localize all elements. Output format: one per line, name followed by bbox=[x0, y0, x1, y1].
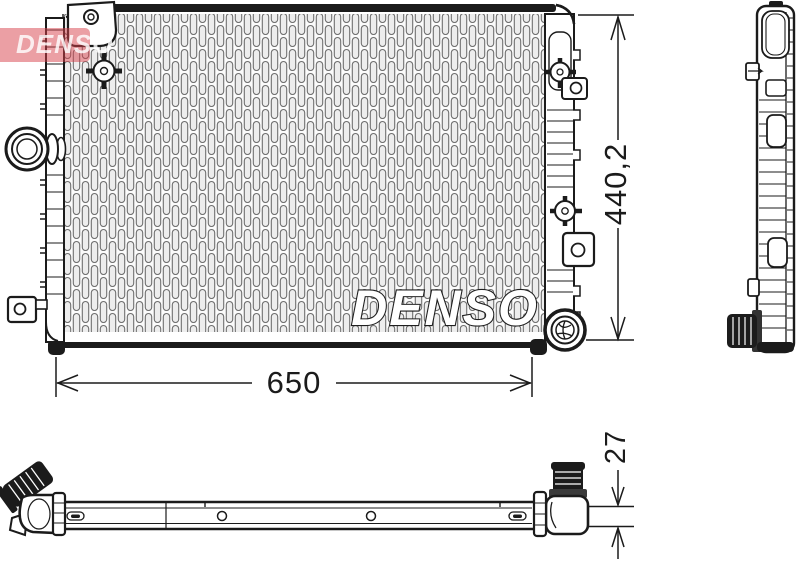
denso-logo: DENSO bbox=[0, 28, 113, 62]
dimension-depth-label: 27 bbox=[600, 430, 632, 464]
right-foot bbox=[530, 339, 547, 355]
lower-left-bracket bbox=[8, 297, 47, 322]
dimension-width: 650 bbox=[56, 357, 532, 400]
upper-right-bracket bbox=[562, 78, 587, 99]
drawing-canvas: DENSO DENSO bbox=[0, 0, 800, 567]
bottom-view bbox=[0, 458, 588, 536]
bottom-left-pipe bbox=[0, 458, 65, 535]
radiator-technical-drawing: DENSO DENSO bbox=[0, 0, 800, 567]
outlet-port bbox=[545, 310, 585, 350]
side-bracket-tab bbox=[746, 63, 762, 80]
side-view bbox=[727, 1, 794, 352]
dimension-width-label: 650 bbox=[267, 365, 322, 400]
bottom-bar bbox=[57, 502, 535, 529]
bottom-right-pipe bbox=[534, 462, 588, 536]
denso-watermark: DENSO bbox=[351, 280, 539, 336]
dimension-depth: 27 bbox=[589, 430, 634, 559]
side-bottom-pipe bbox=[727, 310, 762, 352]
dimension-height-label: 440,2 bbox=[598, 143, 633, 226]
right-tank bbox=[545, 5, 594, 350]
core-top-band bbox=[110, 4, 556, 12]
bottom-slot-right bbox=[509, 512, 526, 520]
dimension-height: 440,2 bbox=[578, 15, 634, 340]
denso-logo-text: DENSO bbox=[16, 29, 113, 59]
bottom-slot-left bbox=[67, 512, 84, 520]
mid-right-bracket bbox=[563, 233, 594, 266]
core-bottom-band bbox=[62, 342, 540, 348]
